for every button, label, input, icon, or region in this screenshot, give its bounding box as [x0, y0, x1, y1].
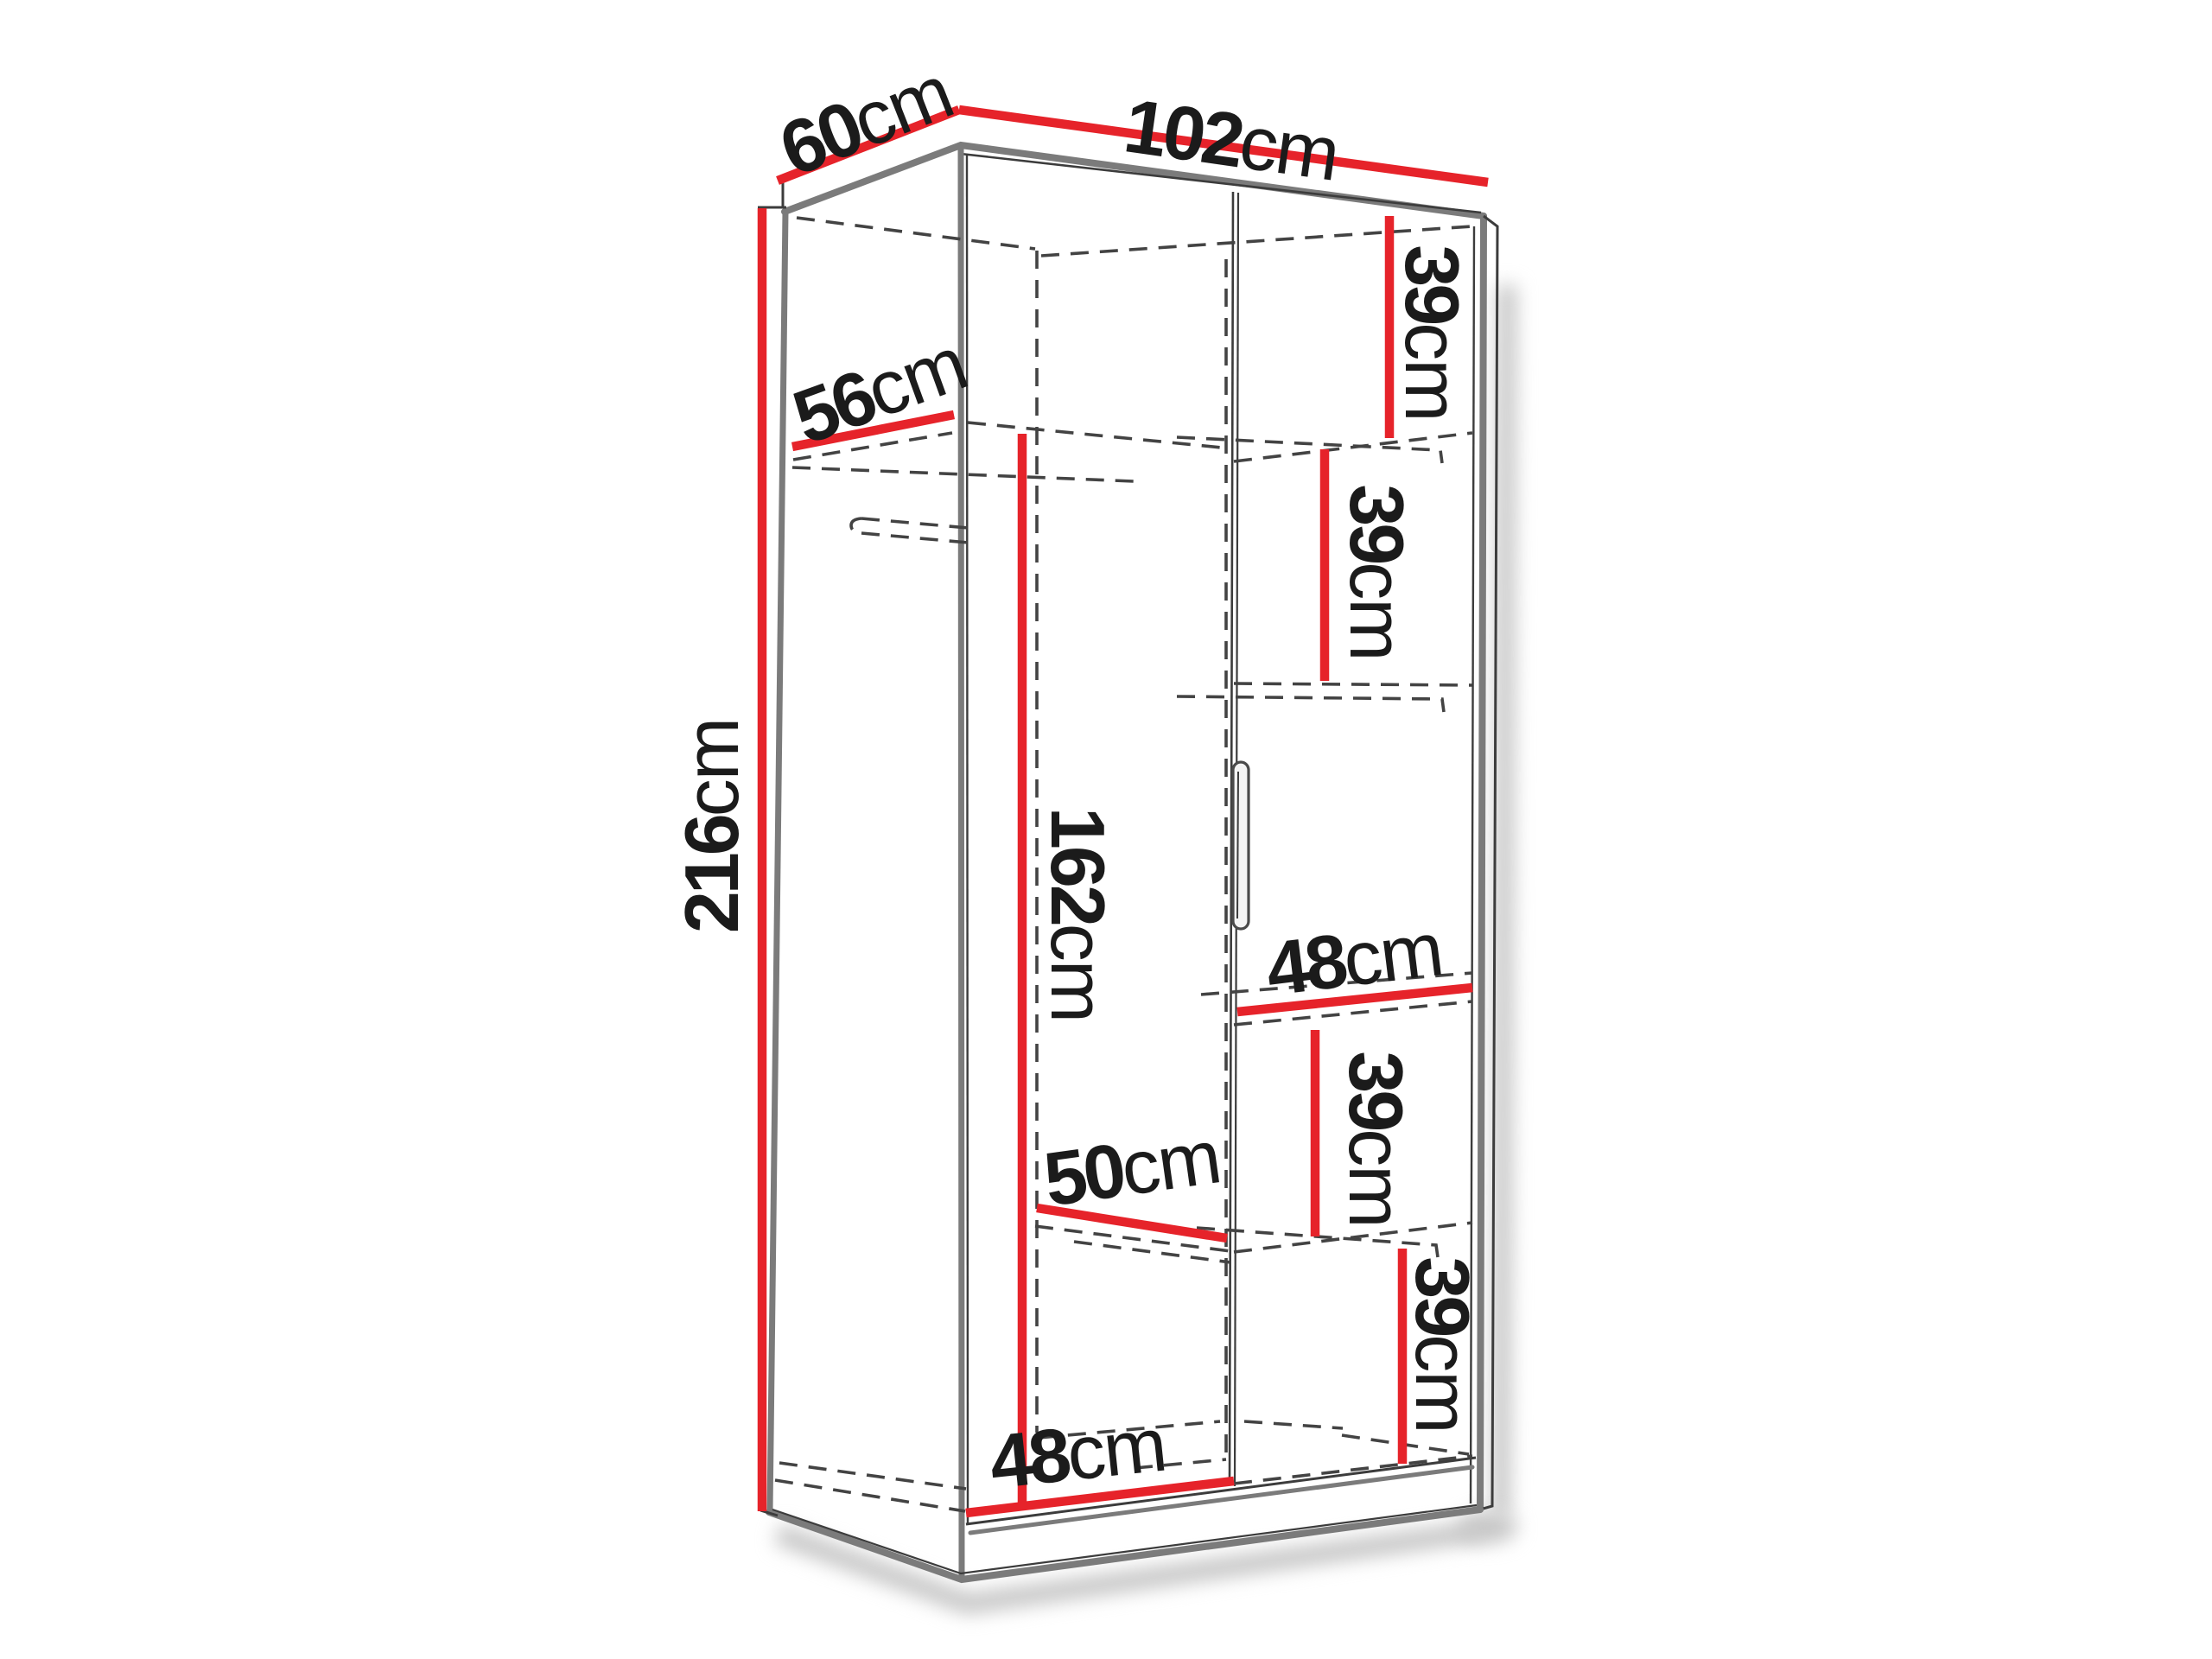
dim-label-162: 162cm	[1039, 807, 1116, 1021]
dim-label-48-mid: 48cm	[1262, 911, 1446, 1007]
dimension-lines	[758, 110, 1488, 1516]
dim-label-39-1: 39cm	[1394, 245, 1470, 420]
dim-label-39-3: 39cm	[1338, 1051, 1414, 1226]
dim-label-39-4: 39cm	[1404, 1256, 1480, 1432]
dim-label-48-bottom: 48cm	[986, 1407, 1168, 1501]
door-handle	[1233, 762, 1249, 929]
dim-label-height-216: 216cm	[674, 719, 750, 933]
dim-label-39-2: 39cm	[1338, 484, 1414, 659]
wardrobe-dimension-diagram: 60cm 102cm 216cm 56cm 39cm 39cm 162cm 48…	[0, 0, 2212, 1659]
